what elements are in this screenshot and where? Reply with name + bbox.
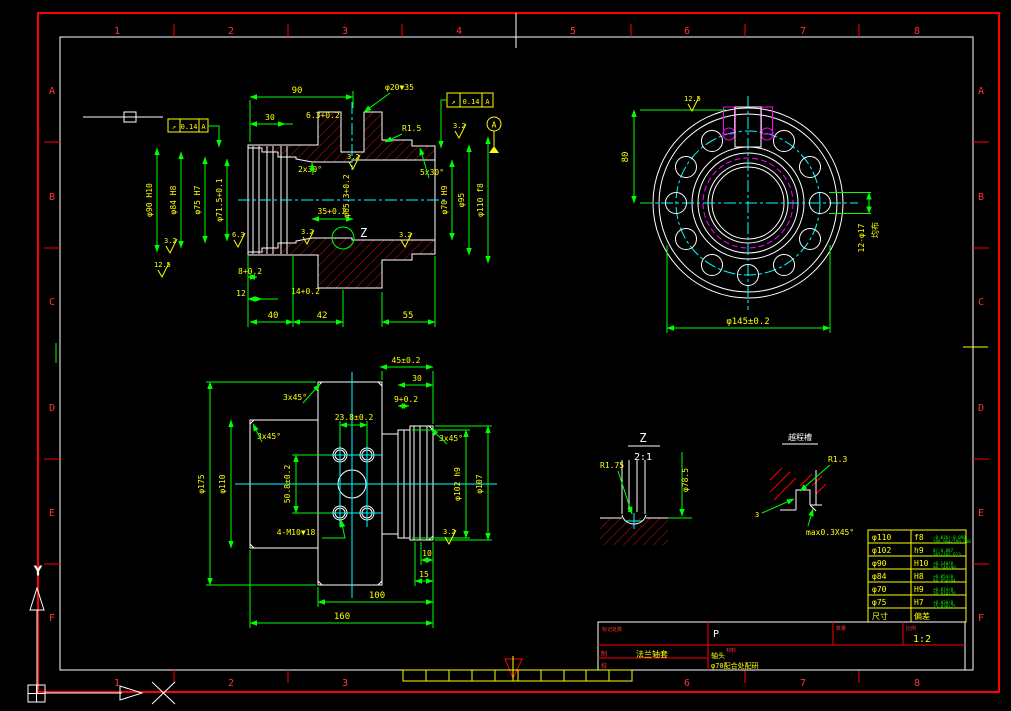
drawn-label: 制 [601,650,607,658]
zone-col-bottom: 2 [228,678,234,689]
dim: 4-M10▼18 [277,528,316,537]
zone-col-bottom: 8 [914,678,920,689]
zone-col: 6 [684,26,690,37]
ucs-icon: Y [28,564,175,704]
dim: 40 [268,311,279,321]
dim: φ70 H9 [440,185,449,214]
zone-row-r: B [978,192,984,203]
roughness: 3.2 [164,237,177,245]
note-2: φ70配合处配研 [711,661,759,670]
bottom-center-mark [505,656,522,681]
zone-col: 4 [456,26,462,37]
dim: φ78.5 [681,468,690,492]
dim: 30 [265,113,275,122]
dim: 50.8±0.2 [283,465,292,504]
detail-z-label: Z [360,226,367,240]
zone-row: F [49,613,55,624]
detail-groove: 越程槽 R1.3 3 max0.3X45° [755,432,854,537]
detail-label: Z [639,431,646,445]
ucs-y-label: Y [34,564,42,578]
datum-a: A [487,117,501,153]
detail-z: Z 2:1 R1.75 φ78.5 [600,431,692,545]
fit-cell: H10 [914,559,929,568]
dim: 100 [369,591,385,601]
dim: 42 [317,311,328,321]
size-cell: φ102 [872,546,891,555]
title-block: 标记处数 P 数量 比例 1:2 材料 制 法兰轴套 校 轴头 φ70配合处配研 [598,622,965,670]
roughness: 12.5 [154,261,171,269]
dim: φ107 [475,474,484,493]
zone-col-bottom: 6 [684,678,690,689]
dim: 8+0.2 [238,267,262,276]
dim: φ75 H7 [193,185,202,214]
fcf-value: 0.14 [181,123,198,131]
dim: 15 [419,570,429,579]
scale-strip [403,670,632,681]
dim: 9+0.2 [394,395,418,404]
fit-cell: h9 [914,546,924,555]
zone-row-r: A [978,86,984,97]
size-cell: φ75 [872,598,887,607]
drawing-code: P [713,629,719,640]
roughness: 3.2 [443,528,456,536]
zone-col: 3 [342,26,348,37]
dim: 45±0.2 [392,356,421,365]
dim: 23.8±0.2 [335,413,374,422]
dim: φ90 H10 [145,183,154,217]
fcf-symbol: ↗ [451,98,455,106]
dim: φ145±0.2 [726,317,769,327]
dim: 55 [403,311,414,321]
v1-dims: 90 30 6.3+0.2 φ20▼35 R1.5 2x30° 5x30° 35… [145,83,488,327]
view-front: 45±0.2 30 9+0.2 3x45° 23.8±0.2 3x45° 3x4… [197,356,497,628]
zone-col: 8 [914,26,920,37]
roughness: 3.2 [301,228,314,236]
zone-col: 7 [800,26,806,37]
dim: φ84 H8 [169,185,178,214]
dim: φ175 [197,474,206,493]
dim: 90 [292,86,303,96]
scale-label: 比例 [906,625,916,632]
dim: 5x30° [420,168,444,177]
part-name: 法兰轴套 [636,649,668,659]
note-1: 轴头 [711,651,725,660]
view-flange: 80 12-φ17 均布 φ145±0.2 12.5 [621,95,880,333]
v3-dims: 45±0.2 30 9+0.2 3x45° 23.8±0.2 3x45° 3x4… [197,356,492,628]
zone-row-r: F [978,613,984,624]
size-cell: φ110 [872,533,891,542]
dim: 30 [412,374,422,383]
qty-label: 数量 [836,625,846,632]
dim: R1.5 [402,124,421,133]
fcf-symbol: ↗ [172,123,176,131]
size-cell: φ90 [872,559,887,568]
dim: φ71.5+0.1 [215,178,224,222]
dim: φ110 [218,474,227,493]
zone-row: C [49,297,55,308]
zone-col-bottom: 1 [114,678,120,689]
zone-col: 1 [114,26,120,37]
dim: φ95 [457,193,466,208]
dim: 10 [422,549,432,558]
roughness: 3.2 [453,122,466,130]
roughness: 3.2 [347,153,360,161]
dim: φ20▼35 [385,83,414,92]
fit-cell: H9 [914,585,924,594]
dim: 3x45° [283,393,307,402]
lim-cell: 109.964/109.910 [933,539,971,544]
material-label: 材料 [726,647,736,654]
dim: 160 [334,612,350,622]
lim-cell: 70.074/70 [933,591,956,596]
datum-label: A [492,121,497,130]
zone-row: A [49,86,55,97]
dim: 80 [621,152,631,163]
table-footer-size: 尺寸 [872,611,888,621]
zone-row: D [49,403,55,414]
checked-label: 校 [601,662,607,670]
fcf-left: ↗ 0.14 A [168,119,219,147]
zone-col-bottom: 7 [800,678,806,689]
roughness: 12.5 [684,95,701,103]
zone-col: 2 [228,26,234,37]
dim: φ110 f8 [476,183,485,217]
dim-note: 均布 [870,222,880,238]
dim: 3x45° [439,434,463,443]
lim-cell: 84.054/84 [933,578,956,583]
zone-col-bottom: 3 [342,678,348,689]
dim: 12-φ17 [857,223,866,252]
dim: 6.3+0.2 [306,111,340,120]
dim: 3 [755,511,759,519]
roughness: 6.3 [232,231,245,239]
fcf-value: 0.14 [463,98,480,106]
dim: R1.75 [600,461,624,470]
lim-cell: 75.030/75 [933,604,956,609]
tolerance-table: φ110 f8 -0.036/-0.090 109.964/109.910 φ1… [868,530,971,622]
size-cell: φ70 [872,585,887,594]
dim: 2x30° [298,165,322,174]
dim: 14+0.2 [291,287,320,296]
scale-value: 1:2 [913,634,931,645]
fcf-datum-ref: A [201,123,206,131]
lim-cell: 102/101.913 [933,552,961,557]
section-lower-hatch [248,238,435,288]
dim: max0.3X45° [806,528,854,537]
fit-cell: H8 [914,572,924,581]
view-section: Z 90 30 6.3+0.2 φ20▼35 R1.5 2x30° 5x30° … [83,83,501,327]
fit-cell: H7 [914,598,924,607]
zone-col: 5 [570,26,576,37]
detail-title: 越程槽 [788,432,812,442]
section-upper-hatch [248,112,435,162]
sheet-border [38,13,999,692]
zone-row-r: E [978,508,984,519]
zone-row-r: C [978,297,984,308]
titleblock-record-label: 标记处数 [602,626,622,633]
dim: φ102 h9 [453,467,462,501]
fit-cell: f8 [914,533,924,542]
zone-row: E [49,508,55,519]
section-marker [83,112,163,122]
fcf-right: ↗ 0.14 A [441,93,493,148]
lim-cell: 90.140/90 [933,565,956,570]
fcf-datum-ref: A [485,98,490,106]
cad-canvas[interactable]: 1 2 3 4 5 6 7 8 1 2 3 6 7 8 A B C D E F … [0,0,1011,711]
dim: φ65.3+0.2 [342,174,351,218]
zone-row-r: D [978,403,984,414]
roughness: 3.2 [399,231,412,239]
size-cell: φ84 [872,572,887,581]
zone-row: B [49,192,55,203]
dim: R1.3 [828,455,847,464]
dim: 12 [236,289,246,298]
groove-hatch [770,468,826,500]
table-footer-fit: 偏差 [914,611,930,621]
